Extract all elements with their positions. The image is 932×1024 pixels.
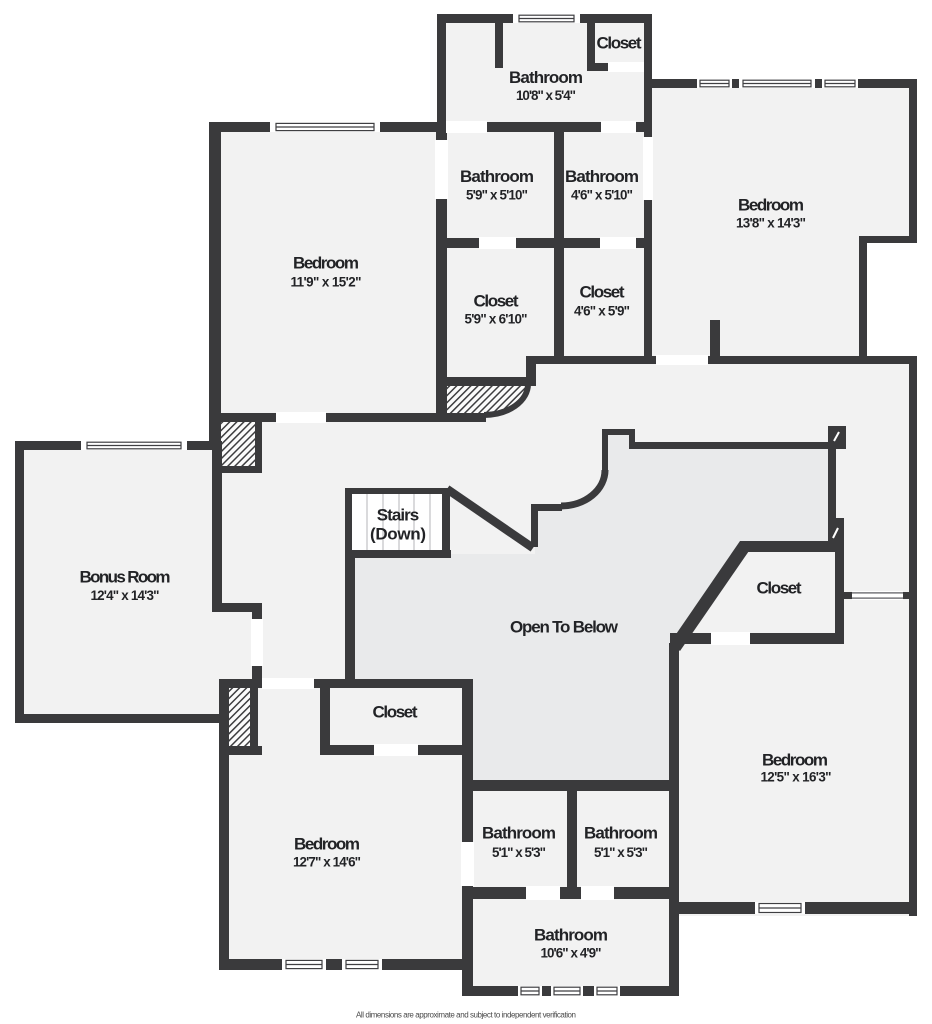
svg-text:(Down): (Down) <box>370 525 426 544</box>
svg-text:Open To Below: Open To Below <box>510 618 619 637</box>
svg-text:Closet: Closet <box>373 703 418 722</box>
svg-text:Bedroom: Bedroom <box>293 254 359 273</box>
svg-text:Bathroom: Bathroom <box>460 167 534 186</box>
svg-text:Bathroom: Bathroom <box>509 68 583 87</box>
svg-text:5'1" x 5'3": 5'1" x 5'3" <box>492 845 546 860</box>
svg-text:12'7" x 14'6": 12'7" x 14'6" <box>293 855 361 870</box>
svg-text:5'9" x 6'10": 5'9" x 6'10" <box>465 312 528 327</box>
svg-text:4'6" x 5'10": 4'6" x 5'10" <box>571 188 633 203</box>
svg-text:Closet: Closet <box>757 579 802 598</box>
svg-text:12'4" x 14'3": 12'4" x 14'3" <box>91 588 160 603</box>
svg-text:10'6" x 4'9": 10'6" x 4'9" <box>541 946 602 961</box>
svg-text:Closet: Closet <box>474 292 519 311</box>
svg-text:All dimensions are approximate: All dimensions are approximate and subje… <box>356 1011 576 1020</box>
svg-text:Closet: Closet <box>580 283 625 302</box>
svg-text:12'5" x 16'3": 12'5" x 16'3" <box>761 770 832 785</box>
svg-text:Bedroom: Bedroom <box>738 196 804 215</box>
svg-text:Bathroom: Bathroom <box>534 926 608 945</box>
svg-text:11'9" x 15'2": 11'9" x 15'2" <box>291 275 362 290</box>
svg-text:Bonus Room: Bonus Room <box>80 568 171 587</box>
svg-text:Bathroom: Bathroom <box>565 167 639 186</box>
svg-text:5'9" x 5'10": 5'9" x 5'10" <box>466 188 528 203</box>
svg-text:13'8" x 14'3": 13'8" x 14'3" <box>736 216 806 231</box>
svg-text:5'1" x 5'3": 5'1" x 5'3" <box>594 845 648 860</box>
svg-text:Bedroom: Bedroom <box>762 751 828 770</box>
svg-text:Bedroom: Bedroom <box>294 835 360 854</box>
svg-text:Closet: Closet <box>597 34 642 53</box>
svg-text:Stairs: Stairs <box>377 506 420 525</box>
svg-text:Bathroom: Bathroom <box>584 824 658 843</box>
svg-text:Bathroom: Bathroom <box>482 824 556 843</box>
svg-text:4'6" x 5'9": 4'6" x 5'9" <box>574 304 630 319</box>
svg-text:10'8" x 5'4": 10'8" x 5'4" <box>516 88 576 103</box>
